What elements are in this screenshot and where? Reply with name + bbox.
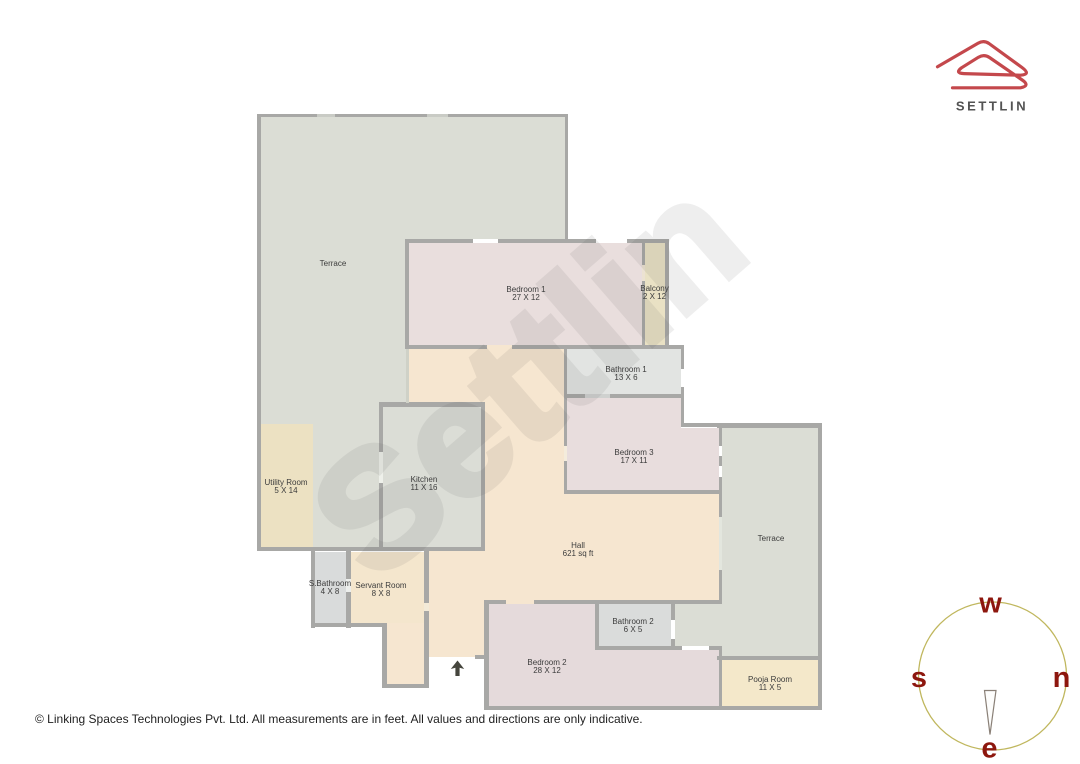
svg-text:e: e [981, 733, 997, 764]
svg-text:w: w [978, 588, 1002, 620]
svg-text:s: s [911, 662, 927, 694]
svg-text:n: n [1053, 662, 1071, 694]
